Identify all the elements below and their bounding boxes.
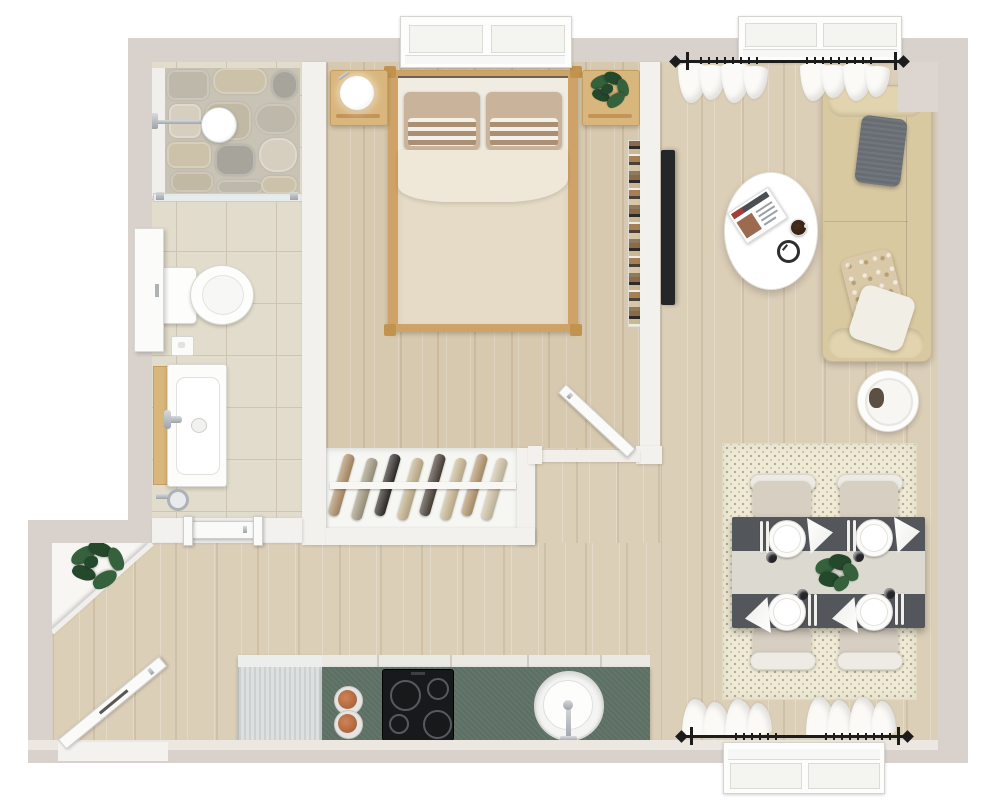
bathroom-wall-cabinet — [134, 228, 164, 352]
flush-button — [178, 342, 185, 348]
fork — [895, 593, 898, 625]
bed-post — [384, 324, 396, 336]
shower-stone — [215, 144, 255, 176]
sofa-seat-seam — [824, 221, 908, 222]
dining-chair-backrest — [750, 652, 816, 670]
fork — [760, 521, 763, 553]
curtain-fold — [743, 66, 768, 99]
duvet-folded-sheet — [398, 150, 568, 202]
knife — [814, 594, 817, 626]
curtain-rings — [735, 733, 783, 740]
cooktop — [382, 669, 454, 741]
wall-left-lower — [28, 520, 52, 763]
shower-tray-edge — [152, 68, 165, 196]
window-sash — [808, 763, 880, 789]
bed-post — [570, 324, 582, 336]
hall-plant-center — [84, 556, 98, 568]
shower-glass-clip — [156, 192, 164, 200]
curtain-bunch — [806, 697, 898, 738]
sink-faucet — [566, 706, 571, 740]
window-sash — [409, 25, 483, 53]
knife — [853, 520, 856, 552]
shower-glass-clip — [290, 192, 298, 200]
rod-end-stop — [894, 52, 897, 70]
shower-arm — [152, 120, 204, 124]
cup-handle — [804, 224, 808, 228]
bathroom-door-frame-post — [253, 516, 263, 546]
sink-faucet-head — [563, 700, 573, 710]
clock-coaster — [777, 240, 800, 263]
refrigerator — [238, 655, 324, 750]
bedroom-window — [400, 16, 572, 68]
curtain-rings — [700, 57, 764, 64]
counter-seam — [450, 655, 452, 667]
closet-rail — [330, 482, 516, 489]
table-lamp — [340, 76, 374, 110]
curtain-rings — [825, 733, 893, 740]
bedroom-door-handle — [566, 392, 573, 399]
counter-seam — [377, 655, 379, 667]
dining-chair — [840, 481, 898, 519]
window-sill — [728, 749, 880, 760]
curtain-fold — [747, 703, 772, 735]
tv — [661, 150, 675, 305]
bathroom-door-handle — [243, 526, 247, 533]
gray-cushion — [854, 114, 908, 187]
window-sash — [823, 23, 897, 47]
dining-chair-backrest — [837, 652, 903, 670]
espresso-cup — [797, 589, 808, 600]
fork — [808, 594, 811, 626]
shower-stone — [217, 180, 263, 194]
counter-seam — [527, 655, 529, 667]
window-sill — [405, 55, 565, 64]
side-table-decor — [869, 388, 884, 408]
curtain-bunch — [678, 63, 770, 103]
rod-end-stop — [897, 727, 900, 745]
dining-window — [723, 742, 885, 794]
window-sash — [730, 763, 802, 789]
curtain-rings — [806, 57, 876, 64]
basin-faucet-base — [164, 410, 171, 429]
window-sash — [745, 23, 817, 47]
wall-bathroom-bedroom — [302, 62, 326, 545]
entry-doorway-threshold — [58, 742, 168, 761]
shower-stone — [167, 142, 211, 168]
bedroom-door-frame-post — [528, 446, 542, 464]
rod-end-stop — [690, 727, 693, 745]
bed-pillow-left-stripes — [408, 118, 476, 146]
toilet-seat-ring — [202, 275, 244, 315]
towel-ring — [167, 489, 189, 511]
window-sill — [743, 49, 897, 57]
wall-corner-column — [898, 62, 938, 112]
refrigerator-top-edge — [238, 655, 322, 667]
knife — [766, 521, 769, 553]
burner — [427, 678, 449, 700]
dining-chair — [753, 481, 811, 519]
espresso-cup — [853, 551, 864, 562]
shower-stone — [171, 172, 213, 192]
burner — [423, 710, 452, 739]
fork — [847, 520, 850, 552]
curtain-fold — [865, 66, 890, 97]
curtain-fold — [871, 701, 896, 735]
shower-stone — [259, 138, 297, 172]
espresso-cup — [766, 552, 777, 563]
living-window — [738, 16, 902, 62]
wall-closet-bottom — [326, 528, 535, 545]
counter-seam — [600, 655, 602, 667]
bed-pillow-right-stripes — [490, 118, 558, 146]
shower-stone — [271, 70, 298, 100]
espresso-cup — [884, 588, 895, 599]
wall-bedroom-living — [640, 62, 660, 450]
rod-end-stop — [686, 52, 689, 70]
floor-plan — [0, 0, 1000, 806]
double-bed — [384, 66, 582, 336]
knife — [901, 593, 904, 625]
curtain-bunch — [800, 63, 892, 101]
basin-drain — [191, 418, 207, 433]
nightstand-left-drawer — [336, 114, 380, 118]
cooktop-controls — [411, 672, 425, 675]
sofa — [822, 85, 930, 360]
shower-stone — [167, 70, 209, 100]
rain-shower-head — [201, 107, 237, 143]
cabinet-handle — [155, 284, 159, 297]
shower-glass-divider — [153, 193, 304, 202]
bathroom-door-frame-post — [183, 516, 193, 546]
copper-pan — [338, 690, 357, 709]
window-sash — [491, 25, 565, 53]
shower-stone — [213, 68, 267, 94]
wall-right — [938, 38, 968, 763]
towel-ring-mount — [156, 494, 168, 499]
nightstand-right-drawer — [588, 114, 632, 118]
burner — [389, 714, 409, 734]
entry-door-handle — [147, 667, 155, 675]
copper-pan — [338, 714, 357, 733]
burner — [390, 680, 421, 711]
shower-stone — [255, 104, 297, 134]
